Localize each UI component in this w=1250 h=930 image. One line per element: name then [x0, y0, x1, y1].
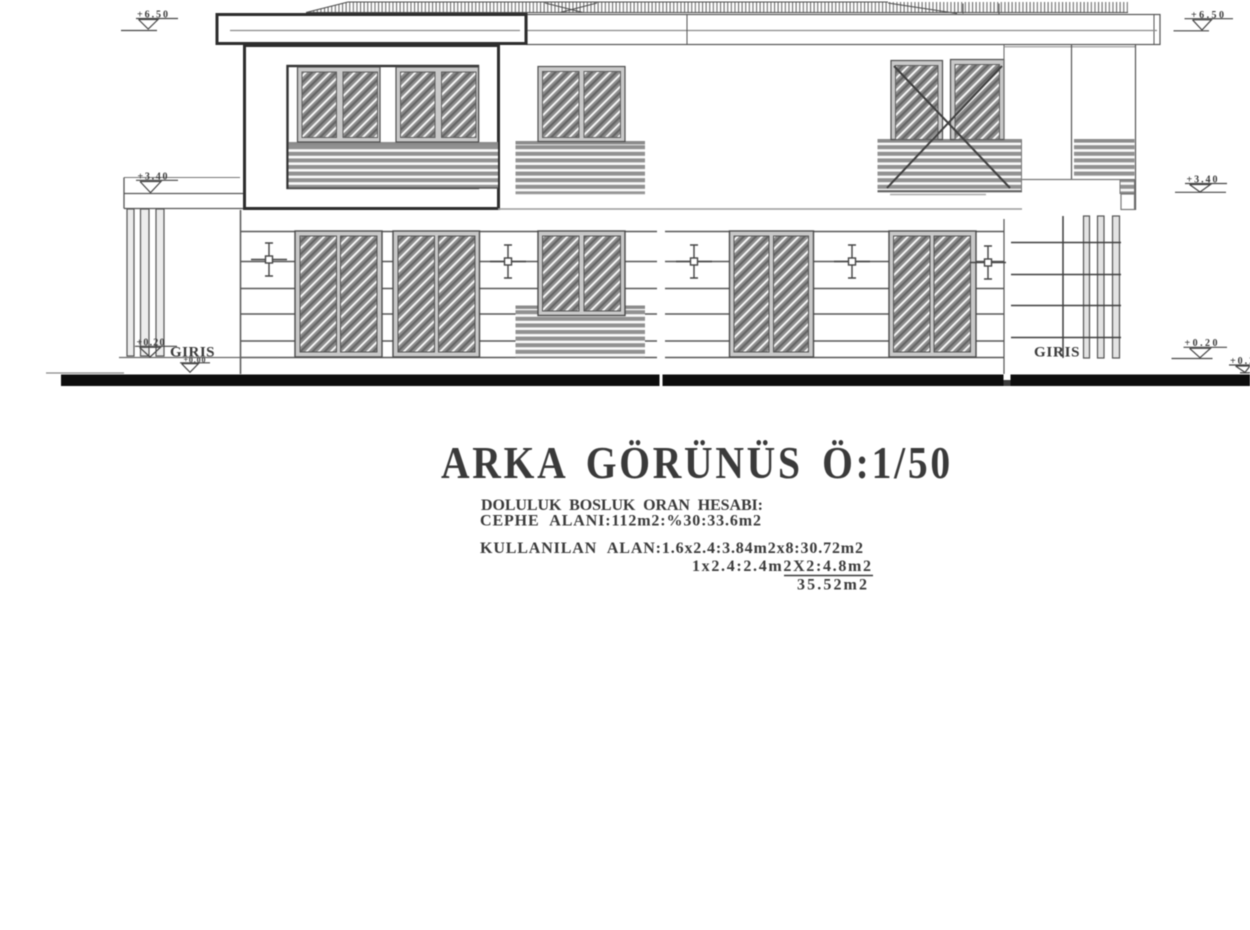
svg-text:GIRIS: GIRIS	[170, 345, 215, 361]
svg-text:DOLULUK BOSLUK ORAN HESABI:: DOLULUK BOSLUK ORAN HESABI:	[481, 497, 763, 514]
svg-text:GIRIS: GIRIS	[1034, 345, 1080, 361]
svg-text:CEPHE ALANI:112m2:%30:33.6m2: CEPHE ALANI:112m2:%30:33.6m2	[480, 513, 761, 530]
svg-text:35.52m2: 35.52m2	[797, 577, 867, 594]
svg-text:1x2.4:2.4m2X2:4.8m2: 1x2.4:2.4m2X2:4.8m2	[692, 558, 871, 575]
svg-text:KULLANILAN ALAN:1.6x2.4:3.84m: KULLANILAN ALAN:1.6x2.4:3.84m2x8:30.72m2	[480, 540, 863, 557]
svg-text:ARKA GÖRÜNÜS Ö:1/50: ARKA GÖRÜNÜS Ö:1/50	[441, 438, 950, 488]
